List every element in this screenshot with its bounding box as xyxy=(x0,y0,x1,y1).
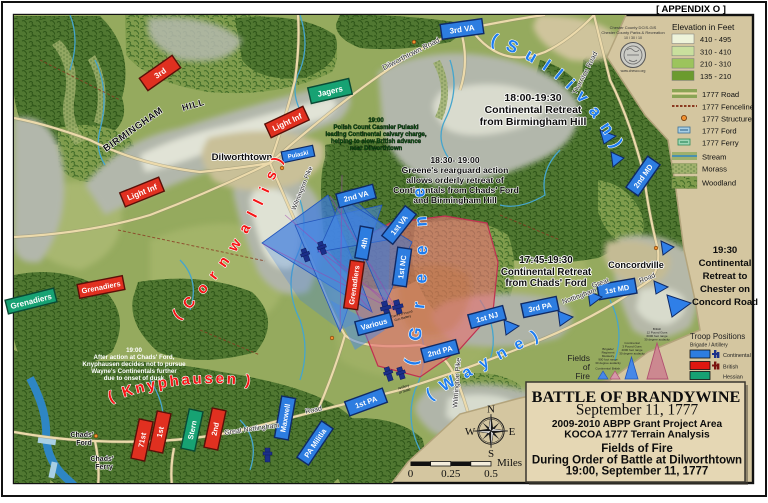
svg-text:10 / 30 / 10: 10 / 30 / 10 xyxy=(624,36,642,40)
svg-text:After action at Chads' Ford,: After action at Chads' Ford, xyxy=(94,354,175,361)
svg-text:Miles: Miles xyxy=(497,457,522,469)
svg-text:0: 0 xyxy=(408,468,414,480)
svg-text:19:30: 19:30 xyxy=(713,245,738,256)
svg-text:310 - 410: 310 - 410 xyxy=(700,47,731,56)
svg-text:1777 Ferry: 1777 Ferry xyxy=(702,139,739,148)
svg-text:Continental Retreat: Continental Retreat xyxy=(501,267,592,278)
svg-text:Greene's rearguard action: Greene's rearguard action xyxy=(402,165,509,175)
svg-text:17:45-19:30: 17:45-19:30 xyxy=(519,255,573,266)
svg-text:Dilworthtown: Dilworthtown xyxy=(212,152,273,163)
svg-text:2009-2010 ABPP Grant Project A: 2009-2010 ABPP Grant Project Area xyxy=(552,419,723,430)
svg-text:Wayne's Continentals further: Wayne's Continentals further xyxy=(91,368,177,375)
svg-text:near Dilworthtown: near Dilworthtown xyxy=(350,146,403,152)
svg-text:Morass: Morass xyxy=(702,165,727,174)
svg-text:S: S xyxy=(488,448,494,460)
svg-text:18:30- 19:00: 18:30- 19:00 xyxy=(430,155,479,165)
svg-text:30 degree audacity: 30 degree audacity xyxy=(619,352,645,356)
svg-text:30 degree audacity: 30 degree audacity xyxy=(644,338,670,342)
svg-text:410 - 495: 410 - 495 xyxy=(700,35,731,44)
svg-text:19:00: 19:00 xyxy=(368,118,384,124)
svg-text:Polish Count Casmier Pulaski: Polish Count Casmier Pulaski xyxy=(333,125,418,131)
svg-text:Chads': Chads' xyxy=(90,456,113,463)
svg-text:Ferry: Ferry xyxy=(95,464,113,471)
svg-text:Chester on: Chester on xyxy=(700,284,750,295)
svg-text:[ APPENDIX O ]: [ APPENDIX O ] xyxy=(656,4,726,15)
svg-text:1777 Fenceline: 1777 Fenceline xyxy=(702,103,754,112)
svg-text:E: E xyxy=(509,426,516,438)
svg-text:Continental: Continental xyxy=(595,367,611,371)
svg-text:210 - 310: 210 - 310 xyxy=(700,60,731,69)
svg-text:www.chesco.org: www.chesco.org xyxy=(621,69,646,73)
svg-text:Continental: Continental xyxy=(699,258,752,269)
svg-text:1777 Structure: 1777 Structure xyxy=(702,115,752,124)
svg-text:19:00: 19:00 xyxy=(126,347,142,354)
svg-text:Elevation in Feet: Elevation in Feet xyxy=(672,22,735,32)
svg-text:Fields of Fire: Fields of Fire xyxy=(601,443,673,455)
svg-text:30 degree audacity: 30 degree audacity xyxy=(595,361,621,365)
svg-text:British: British xyxy=(723,365,738,371)
svg-text:0.5: 0.5 xyxy=(484,468,498,480)
svg-text:1777 Ford: 1777 Ford xyxy=(702,127,737,136)
svg-text:KOCOA 1777 Terrain Analysis: KOCOA 1777 Terrain Analysis xyxy=(564,430,710,441)
svg-text:from Birmingham Hill: from Birmingham Hill xyxy=(480,116,587,128)
svg-text:Fire: Fire xyxy=(575,371,590,381)
svg-text:Woodland: Woodland xyxy=(702,179,736,188)
svg-text:helping to slow British advanc: helping to slow British advance xyxy=(331,139,422,145)
svg-text:W: W xyxy=(465,426,476,438)
svg-text:19:00, September 11, 1777: 19:00, September 11, 1777 xyxy=(566,466,709,478)
svg-text:Knyphausen decides not to purs: Knyphausen decides not to pursue xyxy=(82,361,186,368)
svg-text:135 - 210: 135 - 210 xyxy=(700,72,731,81)
svg-text:leading Continental calvary ch: leading Continental calvary charge, xyxy=(325,132,426,138)
svg-text:Continental: Continental xyxy=(723,353,751,359)
svg-text:Retreat to: Retreat to xyxy=(703,271,748,282)
svg-text:British: British xyxy=(612,367,621,371)
svg-text:Hessian: Hessian xyxy=(723,375,743,381)
svg-text:1777 Road: 1777 Road xyxy=(702,90,739,99)
svg-text:from Chads' Ford: from Chads' Ford xyxy=(505,278,586,289)
svg-text:Stream: Stream xyxy=(702,153,726,162)
svg-text:N: N xyxy=(487,404,495,416)
svg-text:Ford: Ford xyxy=(76,440,92,447)
svg-text:Troop Positions: Troop Positions xyxy=(690,332,745,341)
svg-text:18:00-19:30: 18:00-19:30 xyxy=(504,92,561,104)
svg-text:0.25: 0.25 xyxy=(441,468,461,480)
svg-text:Chads': Chads' xyxy=(70,432,93,439)
svg-text:Concord Road: Concord Road xyxy=(692,297,758,308)
svg-text:Chester County Parks & Recreat: Chester County Parks & Recreation xyxy=(601,30,664,35)
svg-text:Brigade / Artillery: Brigade / Artillery xyxy=(690,343,728,349)
svg-text:Continental Retreat: Continental Retreat xyxy=(485,104,582,116)
svg-text:September 11, 1777: September 11, 1777 xyxy=(576,402,699,419)
svg-text:Concordville: Concordville xyxy=(608,260,664,270)
